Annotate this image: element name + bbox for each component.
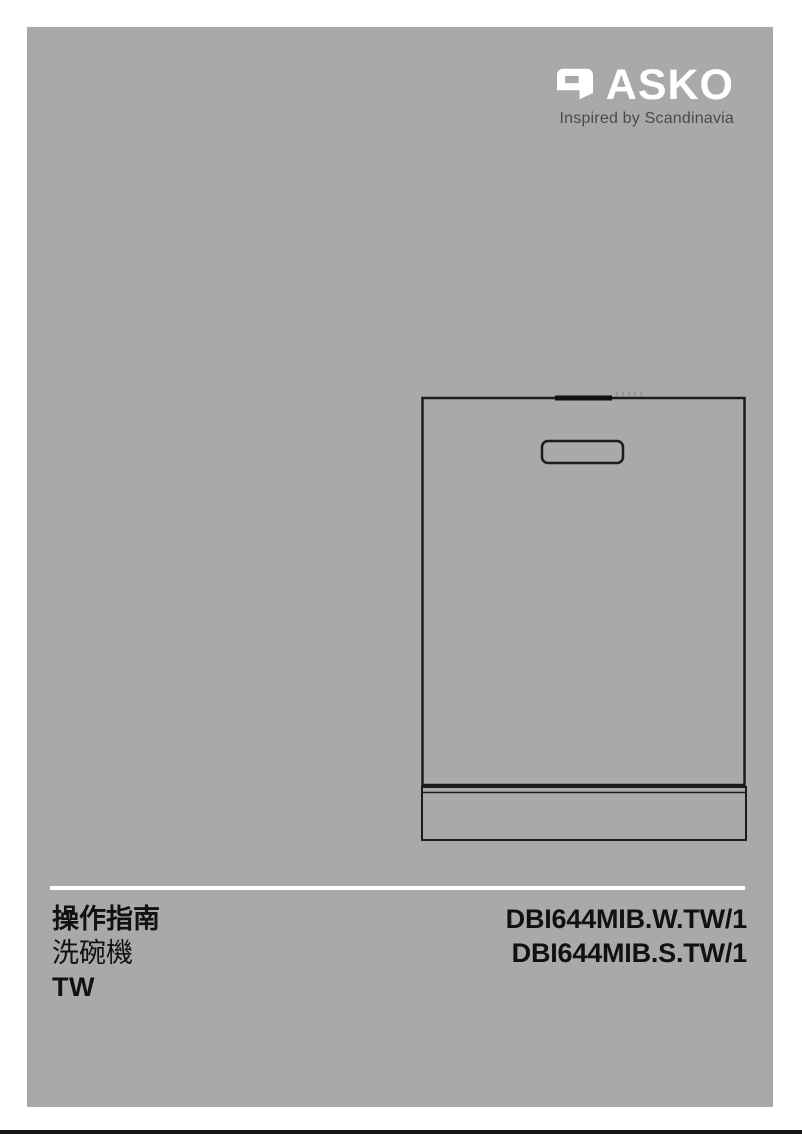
brand-wordmark: ASKO — [606, 64, 734, 107]
dishwasher-handle — [542, 441, 623, 463]
asko-logo: ASKO Inspired by Scandinavia — [557, 64, 734, 128]
control-panel-ticks — [617, 392, 641, 397]
doc-title: 操作指南 — [52, 902, 160, 936]
dishwasher-door — [423, 398, 745, 785]
model-number: DBI644MIB.W.TW/1 — [506, 902, 747, 936]
model-numbers: DBI644MIB.W.TW/1 DBI644MIB.S.TW/1 — [506, 902, 747, 970]
manual-cover-page: ASKO Inspired by Scandinavia 操作指南 洗碗機 TW… — [0, 0, 802, 1136]
document-titles: 操作指南 洗碗機 TW — [52, 902, 160, 1004]
doc-language: TW — [52, 970, 160, 1004]
doc-product: 洗碗機 — [52, 936, 160, 970]
model-number: DBI644MIB.S.TW/1 — [506, 936, 747, 970]
footer-divider-line — [50, 886, 745, 890]
asko-logo-row: ASKO — [557, 64, 734, 107]
brand-tagline: Inspired by Scandinavia — [557, 110, 734, 128]
page-edge-bar — [0, 1130, 802, 1134]
dishwasher-plinth — [422, 787, 746, 840]
dishwasher-illustration — [420, 390, 750, 845]
asko-a-logomark-icon — [557, 68, 593, 100]
